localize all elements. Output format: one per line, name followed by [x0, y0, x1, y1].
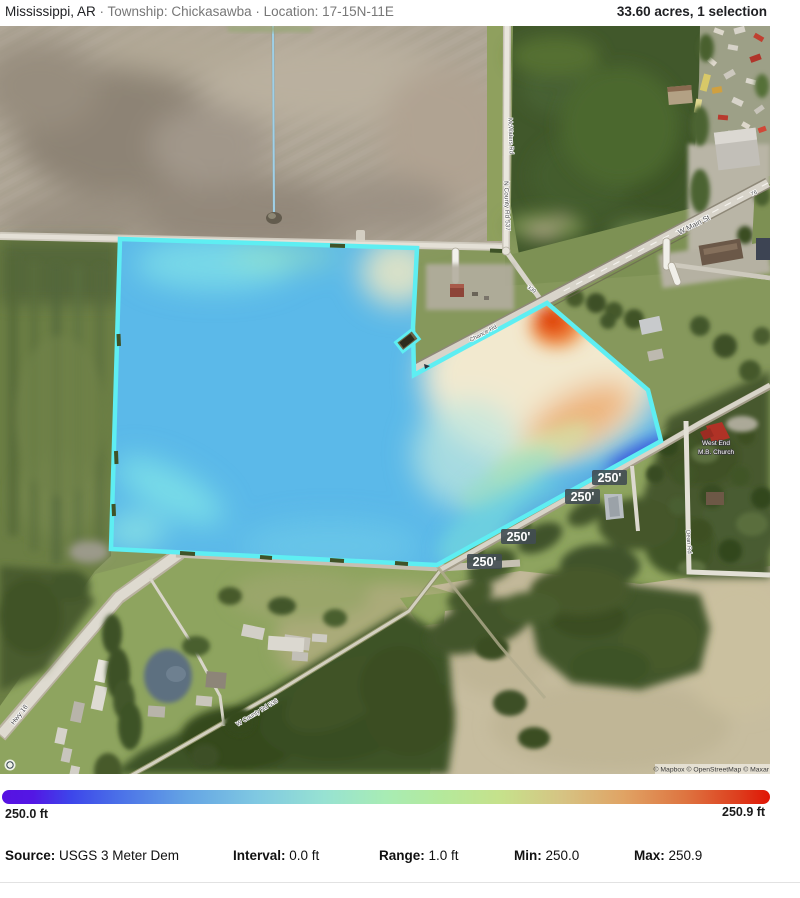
svg-text:West End: West End [702, 440, 730, 447]
svg-text:McWaters Rd: McWaters Rd [506, 118, 513, 154]
svg-text:250': 250' [507, 530, 531, 544]
svg-text:250': 250' [571, 490, 595, 504]
svg-text:250': 250' [598, 471, 622, 485]
svg-text:M.B. Church: M.B. Church [698, 449, 735, 456]
svg-text:© Mapbox © OpenStreetMap © Max: © Mapbox © OpenStreetMap © Maxar [653, 766, 769, 774]
svg-text:250': 250' [473, 555, 497, 569]
